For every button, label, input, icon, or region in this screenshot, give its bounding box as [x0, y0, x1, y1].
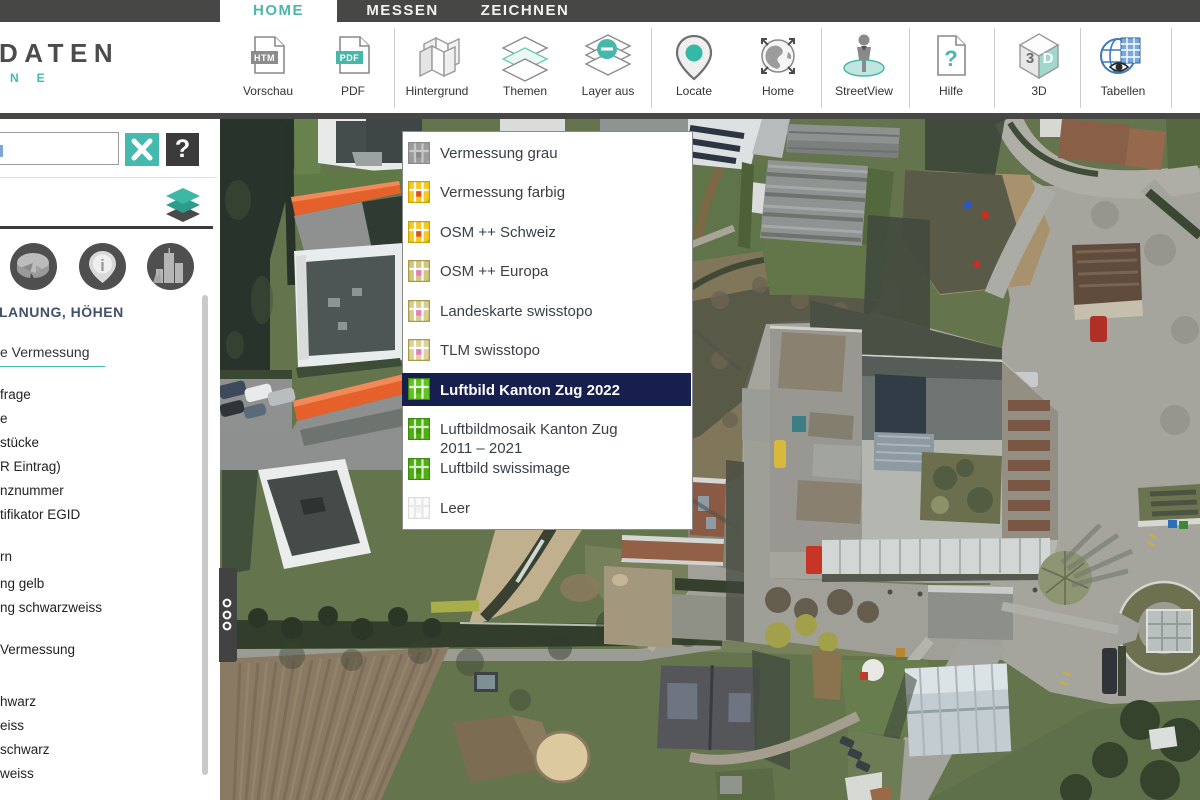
- svg-text:D: D: [1043, 50, 1054, 67]
- svg-text:?: ?: [944, 46, 957, 71]
- svg-text:HTM: HTM: [254, 53, 275, 63]
- svg-text:i: i: [100, 256, 105, 275]
- svg-text:3: 3: [1026, 50, 1034, 67]
- svg-text:PDF: PDF: [340, 53, 360, 63]
